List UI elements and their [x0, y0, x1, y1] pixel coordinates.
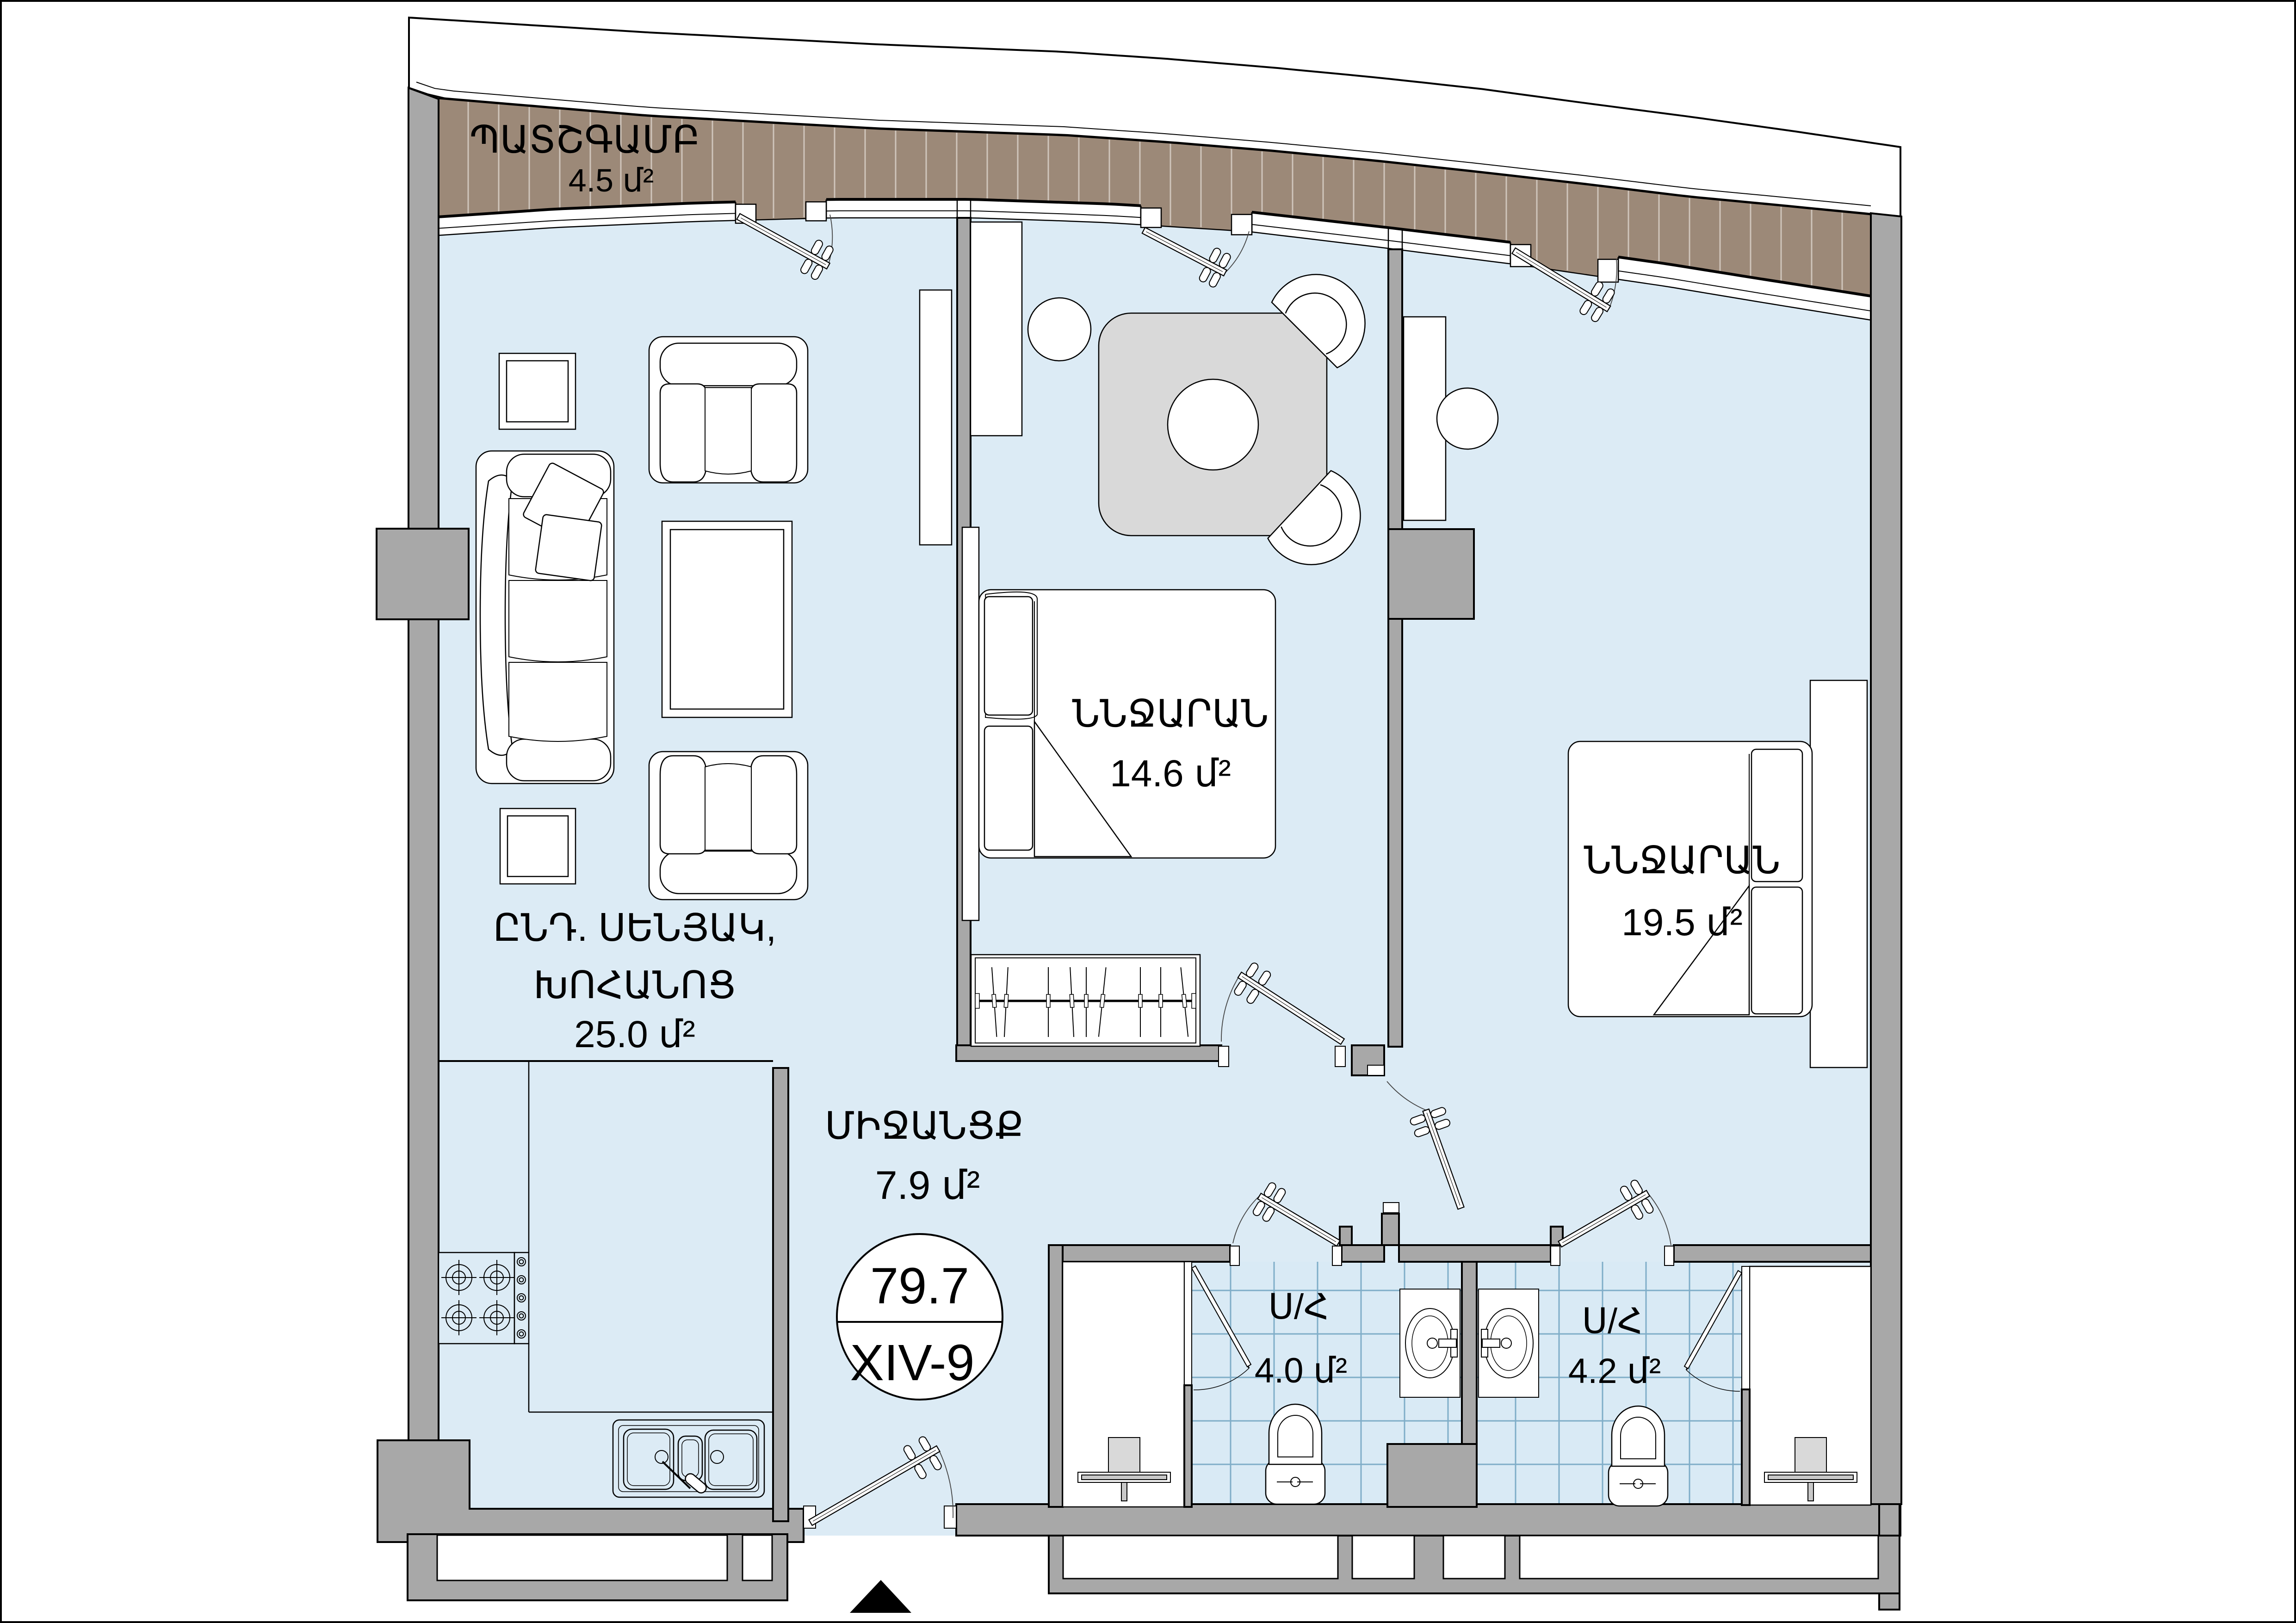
svg-text:ԽՈՀԱՆՈՑ: ԽՈՀԱՆՈՑ	[533, 964, 736, 1006]
svg-text:4.0 մ²: 4.0 մ²	[1255, 1351, 1347, 1390]
svg-text:19.5 մ²: 19.5 մ²	[1621, 901, 1743, 944]
svg-text:ՆՆՋԱՐԱՆ: ՆՆՋԱՐԱՆ	[1072, 693, 1269, 735]
svg-text:7.9 մ²: 7.9 մ²	[875, 1163, 980, 1208]
svg-text:25.0 մ²: 25.0 մ²	[574, 1013, 695, 1055]
svg-text:4.2 մ²: 4.2 մ²	[1568, 1351, 1661, 1391]
svg-text:Ս/Հ: Ս/Հ	[1582, 1302, 1642, 1341]
svg-text:14.6 մ²: 14.6 մ²	[1110, 753, 1231, 795]
svg-text:XIV-9: XIV-9	[850, 1334, 974, 1391]
svg-text:79.7: 79.7	[870, 1258, 969, 1314]
svg-text:ՊԱՏՇԳԱՄԲ: ՊԱՏՇԳԱՄԲ	[470, 119, 700, 161]
svg-text:ՄԻՋԱՆՑՔ: ՄԻՋԱՆՑՔ	[825, 1105, 1024, 1147]
svg-text:ԸՆԴ. ՍԵՆՅԱԿ,: ԸՆԴ. ՍԵՆՅԱԿ,	[493, 907, 776, 949]
svg-text:Ս/Հ: Ս/Հ	[1268, 1287, 1329, 1327]
svg-text:ՆՆՋԱՐԱՆ: ՆՆՋԱՐԱՆ	[1584, 839, 1781, 882]
svg-text:4.5 մ²: 4.5 մ²	[569, 162, 654, 198]
